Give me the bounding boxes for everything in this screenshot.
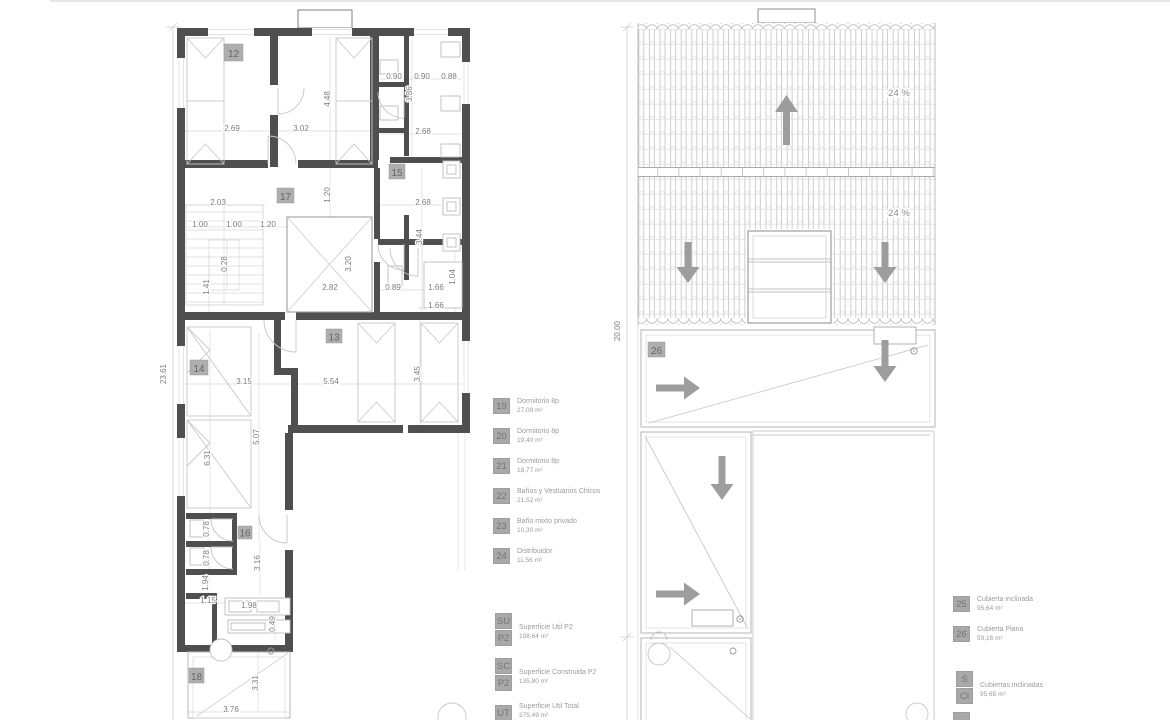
legend-item-label: Dormitorio 8p [517,428,559,436]
legend-code-box: P2 [495,675,512,691]
legend-item-label: Dormitorio 8p [517,398,559,406]
legend-total-ut: UT Superficie Util Total375,49 m² [495,705,579,720]
legend-item-label: Superficie Util Total [519,703,579,711]
legend-code-box: S [956,671,973,687]
legend-overlay: 19 Dormitorio 8p27,09 m² 20 Dormitorio 8… [0,0,1170,720]
legend-item-area: 10,30 m² [517,527,577,535]
legend-code-box: SC [495,658,512,674]
legend-code-box: 23 [493,518,510,534]
architectural-drawing-sheet: 12 17 15 13 14 16 18 2.69 3.02 4.48 0.90… [0,0,1170,720]
legend-item-area: 135,80 m² [519,678,596,686]
legend-code-box: P2 [495,630,512,646]
legend-code-box: SU [495,613,512,629]
legend-code-box: 26 [953,626,970,642]
legend-code-box-partial [953,712,970,720]
legend-code-box: UT [495,705,512,720]
legend-item-label: Superficie Construida P2 [519,669,596,677]
legend-item-label: Baños y Vestuarios Chicos [517,488,600,496]
legend-item-22: 22 Baños y Vestuarios Chicos21,52 m² [493,488,600,505]
legend-item-23: 23 Baño mixto privado10,30 m² [493,518,577,535]
legend-item-area: 18,77 m² [517,467,559,475]
legend-item-20: 20 Dormitorio 8p19,40 m² [493,428,559,445]
legend-item-area: 108,64 m² [519,633,573,641]
legend-item-area: 375,49 m² [519,712,579,720]
legend-item-21: 21 Dormitorio 8p18,77 m² [493,458,559,475]
legend-code-box: Cl [956,688,973,704]
legend-item-label: Superficie Util P2 [519,624,573,632]
legend-item-area: 21,52 m² [517,497,600,505]
legend-item-area: 59,16 m² [977,635,1023,643]
legend-item-label: Cubiertas inclinadas [980,682,1043,690]
legend-total-s-cl: S Cl Cubiertas inclinadas95,65 m² [956,671,1043,704]
legend-code-box: 22 [493,488,510,504]
legend-code-box: 19 [493,398,510,414]
legend-code-box: 24 [493,548,510,564]
legend-item-19: 19 Dormitorio 8p27,09 m² [493,398,559,415]
legend-item-area: 19,40 m² [517,437,559,445]
legend-total-sc-p2: SC P2 Superficie Construida P2135,80 m² [495,658,596,691]
legend-item-area: 95,65 m² [980,691,1043,699]
legend-item-label: Cubierta inclinada [977,596,1033,604]
legend-item-label: Distribuidor [517,548,552,556]
legend-code-box: 20 [493,428,510,444]
legend-item-25: 25 Cubierta inclinada95,64 m² [953,596,1033,613]
legend-item-area: 11,56 m² [517,557,552,565]
legend-item-area: 95,64 m² [977,605,1033,613]
legend-item-label: Baño mixto privado [517,518,577,526]
legend-item-26: 26 Cubierta Plana59,16 m² [953,626,1023,643]
legend-total-su-p2: SU P2 Superficie Util P2108,64 m² [495,613,573,646]
legend-item-label: Dormitorio 8p [517,458,559,466]
legend-code-box: 21 [493,458,510,474]
legend-item-label: Cubierta Plana [977,626,1023,634]
legend-item-area: 27,09 m² [517,407,559,415]
legend-item-24: 24 Distribuidor11,56 m² [493,548,552,565]
legend-code-box: 25 [953,596,970,612]
